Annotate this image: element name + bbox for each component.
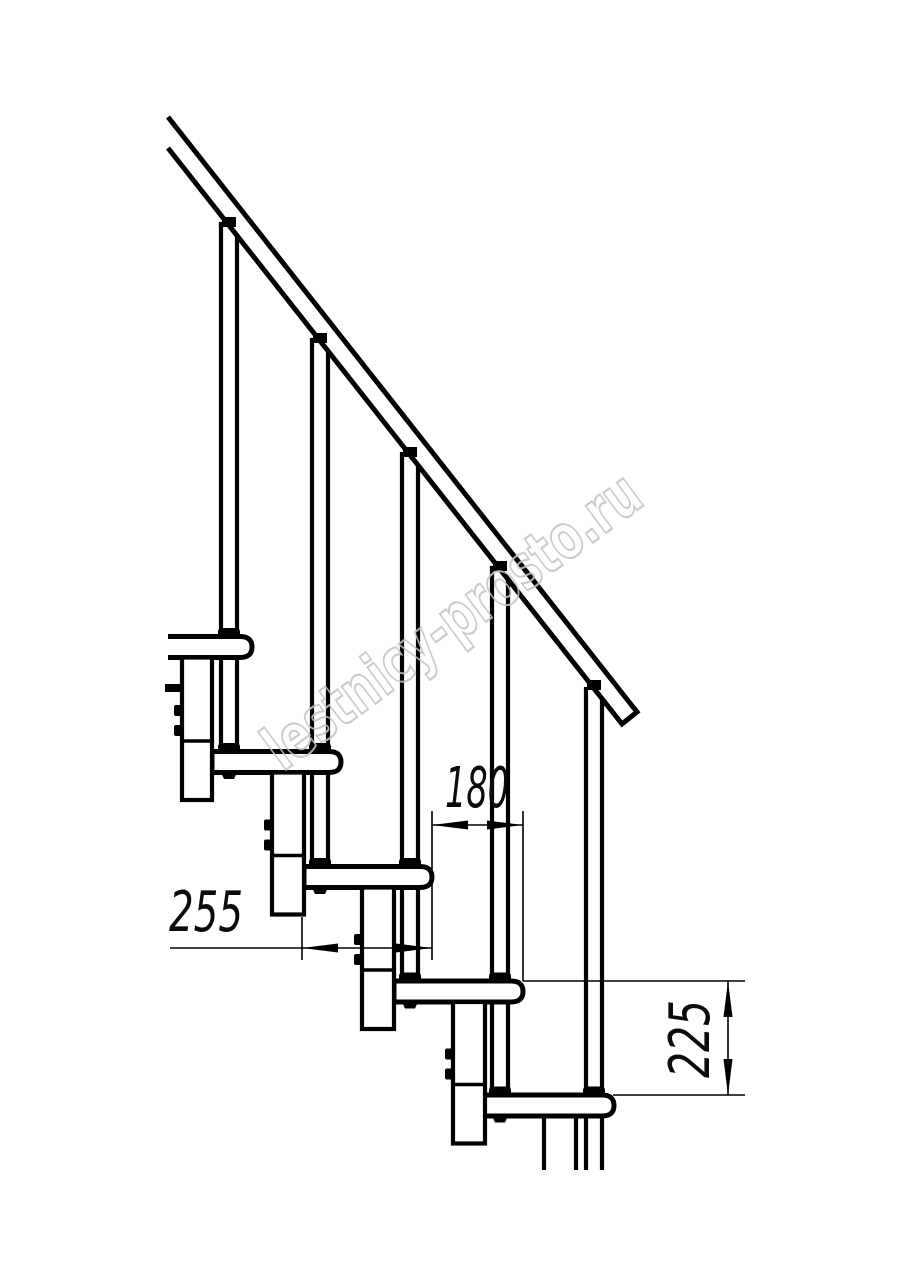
dimension-label-rise: 225 <box>658 1000 723 1078</box>
column-2 <box>272 773 304 915</box>
arrow-left-icon <box>432 821 468 830</box>
arrow-left-icon <box>302 944 338 953</box>
arrow-down-icon <box>724 1059 733 1095</box>
baluster-4 <box>492 568 508 1099</box>
dimension-label-depth: 255 <box>169 880 243 945</box>
drawing-canvas: 180 255 225 lestnicy-prosto.ru <box>0 0 914 1280</box>
tread-5 <box>483 1095 614 1116</box>
baluster-2 <box>312 340 328 870</box>
tread-1 <box>168 637 252 658</box>
tread-4 <box>394 981 523 1002</box>
baluster-3 <box>402 454 418 985</box>
tread-3 <box>304 867 432 888</box>
dimension-step-rise: 225 <box>523 981 745 1095</box>
column-4 <box>453 1002 485 1144</box>
balusters <box>221 224 602 1170</box>
column-1 <box>182 658 212 801</box>
baluster-1 <box>221 224 237 756</box>
column-3 <box>362 888 394 1030</box>
dimension-label-run: 180 <box>445 756 509 821</box>
column-5 <box>544 1116 576 1170</box>
arrow-up-icon <box>724 981 733 1017</box>
staircase-drawing: 180 255 225 lestnicy-prosto.ru <box>0 0 914 1280</box>
